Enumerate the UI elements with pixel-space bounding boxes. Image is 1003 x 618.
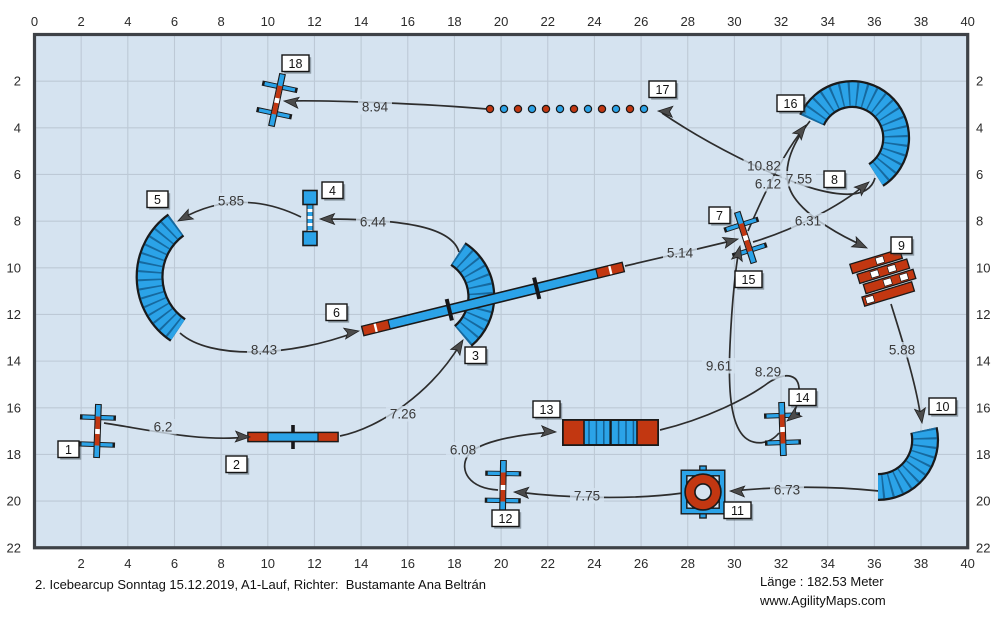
distance-label-8-9: 7.55 [782,171,816,187]
svg-text:16: 16 [7,400,21,415]
svg-text:7: 7 [716,209,723,223]
svg-text:6: 6 [14,167,21,182]
svg-text:8: 8 [976,214,983,229]
svg-text:2: 2 [14,74,21,89]
svg-text:8.43: 8.43 [251,343,277,358]
svg-text:4: 4 [329,184,336,198]
svg-text:12: 12 [499,512,513,526]
svg-text:15: 15 [742,273,756,287]
svg-text:14: 14 [976,354,990,369]
svg-text:14: 14 [7,354,21,369]
svg-text:4: 4 [124,556,131,571]
distance-label-13-14: 8.29 [751,364,785,380]
svg-text:18: 18 [447,14,461,29]
distance-label-10-11: 6.73 [770,482,804,498]
svg-text:26: 26 [634,14,648,29]
svg-text:8: 8 [218,14,225,29]
distance-label-1-2: 6.2 [150,419,177,435]
obstacle-number-5: 5 [147,191,170,210]
obstacle-number-7: 7 [709,207,732,226]
obstacle-number-17: 17 [649,81,678,100]
distance-label-7-8: 6.31 [791,213,825,229]
svg-text:18: 18 [7,447,21,462]
svg-text:9: 9 [898,239,905,253]
svg-text:7.55: 7.55 [786,172,812,187]
distance-label-11-12: 7.75 [570,488,604,504]
svg-text:28: 28 [681,556,695,571]
svg-text:11: 11 [731,504,744,518]
distance-label-16-17: 10.82 [744,158,785,174]
obstacle-number-16: 16 [777,95,806,114]
agility-course-map-page: 0246810121416182022242628303234363840246… [0,0,1003,618]
obstacle-number-1: 1 [58,441,81,460]
svg-text:10: 10 [261,556,275,571]
svg-text:13: 13 [540,403,554,417]
obstacle-straight-tunnel-13 [563,420,658,445]
distance-label-12-13: 6.08 [446,442,480,458]
distance-label-4-5: 5.85 [214,193,248,209]
svg-text:40: 40 [960,556,974,571]
svg-text:17: 17 [656,83,670,97]
svg-text:34: 34 [820,14,834,29]
svg-text:2: 2 [976,74,983,89]
svg-text:12: 12 [307,14,321,29]
svg-text:22: 22 [541,556,555,571]
svg-text:5: 5 [154,193,161,207]
svg-text:3: 3 [472,349,479,363]
svg-text:6.44: 6.44 [360,215,387,230]
svg-text:22: 22 [7,540,21,555]
distance-label-2-3: 7.26 [386,406,420,422]
svg-text:18: 18 [289,57,303,71]
svg-text:20: 20 [494,556,508,571]
svg-text:14: 14 [796,391,810,405]
obstacle-number-15: 15 [735,271,764,290]
svg-text:4: 4 [976,120,983,135]
obstacle-number-11: 11 [724,502,753,521]
obstacle-number-3: 3 [465,347,488,366]
svg-text:10.82: 10.82 [747,159,781,174]
obstacle-number-10: 10 [929,398,958,417]
svg-text:0: 0 [31,14,38,29]
obstacle-number-12: 12 [492,510,521,529]
svg-text:24: 24 [587,556,601,571]
svg-text:8: 8 [218,556,225,571]
svg-text:30: 30 [727,556,741,571]
obstacle-number-9: 9 [891,237,914,256]
svg-text:12: 12 [976,307,990,322]
svg-text:28: 28 [681,14,695,29]
svg-text:36: 36 [867,556,881,571]
svg-text:14: 14 [354,14,368,29]
svg-text:10: 10 [261,14,275,29]
distance-label-3-4: 6.44 [356,214,390,230]
svg-text:30: 30 [727,14,741,29]
svg-text:12: 12 [7,307,21,322]
svg-text:4: 4 [14,120,21,135]
svg-text:9.61: 9.61 [706,359,732,374]
course-map-canvas: 0246810121416182022242628303234363840246… [0,0,1003,618]
svg-text:32: 32 [774,14,788,29]
svg-text:2: 2 [78,556,85,571]
svg-text:10: 10 [936,400,950,414]
obstacle-number-14: 14 [789,389,818,408]
svg-text:24: 24 [587,14,601,29]
obstacle-number-8: 8 [824,171,847,190]
svg-text:6: 6 [333,306,340,320]
svg-text:14: 14 [354,556,368,571]
svg-text:6: 6 [976,167,983,182]
distance-label-9-10: 5.88 [885,342,919,358]
svg-text:22: 22 [541,14,555,29]
svg-text:5.88: 5.88 [889,343,915,358]
svg-text:20: 20 [7,494,21,509]
svg-text:8.29: 8.29 [755,365,781,380]
svg-text:5.14: 5.14 [667,246,694,261]
svg-text:6.31: 6.31 [795,214,821,229]
svg-text:18: 18 [976,447,990,462]
svg-text:32: 32 [774,556,788,571]
svg-text:6.2: 6.2 [154,420,173,435]
svg-text:20: 20 [494,14,508,29]
svg-text:2: 2 [233,458,240,472]
obstacle-number-13: 13 [533,401,562,420]
svg-text:20: 20 [976,494,990,509]
svg-text:4: 4 [124,14,131,29]
svg-text:12: 12 [307,556,321,571]
svg-text:8: 8 [14,214,21,229]
svg-text:8: 8 [831,173,838,187]
svg-text:6.12: 6.12 [755,177,781,192]
svg-text:26: 26 [634,556,648,571]
svg-text:16: 16 [784,97,798,111]
svg-text:40: 40 [960,14,974,29]
svg-text:6.73: 6.73 [774,483,800,498]
event-title: 2. Icebearcup Sonntag 15.12.2019, A1-Lau… [35,577,486,592]
svg-text:38: 38 [914,556,928,571]
svg-text:5.85: 5.85 [218,194,244,209]
obstacle-number-6: 6 [326,304,349,323]
svg-text:8.94: 8.94 [362,100,389,115]
svg-text:2: 2 [78,14,85,29]
svg-text:1: 1 [65,443,72,457]
svg-text:18: 18 [447,556,461,571]
obstacle-number-2: 2 [226,456,249,475]
svg-text:36: 36 [867,14,881,29]
svg-text:34: 34 [820,556,834,571]
distance-label-15-16: 6.12 [751,176,785,192]
svg-text:22: 22 [976,540,990,555]
svg-text:6: 6 [171,556,178,571]
distance-label-17-18: 8.94 [358,99,392,115]
svg-text:7.26: 7.26 [390,407,416,422]
svg-text:7.75: 7.75 [574,489,600,504]
course-length-label: Länge : 182.53 Meter [760,574,884,589]
svg-text:10: 10 [976,260,990,275]
svg-text:10: 10 [7,260,21,275]
obstacle-number-4: 4 [322,182,345,201]
distance-label-14-15: 9.61 [702,358,736,374]
svg-text:16: 16 [976,400,990,415]
svg-text:16: 16 [401,14,415,29]
svg-text:16: 16 [401,556,415,571]
obstacle-number-18: 18 [282,55,311,74]
svg-text:38: 38 [914,14,928,29]
distance-label-6-7: 5.14 [663,245,697,261]
svg-text:6.08: 6.08 [450,443,476,458]
svg-text:6: 6 [171,14,178,29]
distance-label-5-6: 8.43 [247,342,281,358]
website-credit: www.AgilityMaps.com [760,593,886,608]
